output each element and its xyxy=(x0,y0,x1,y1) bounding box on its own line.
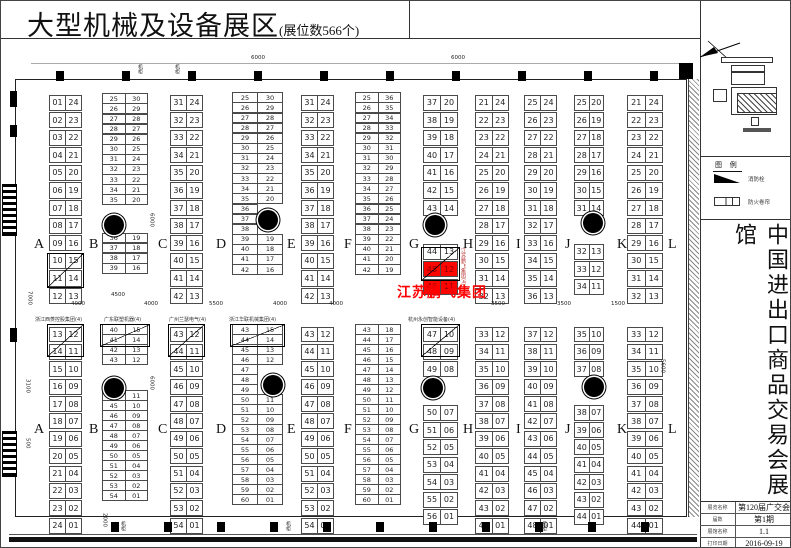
booth-cell[interactable]: 24 xyxy=(475,147,493,163)
booth[interactable]: 2524 xyxy=(524,95,557,111)
booth-cell[interactable]: 33 xyxy=(170,130,187,146)
booth[interactable]: 4302 xyxy=(627,500,663,516)
booth-cell[interactable]: 35 xyxy=(170,165,187,181)
booth-cell[interactable]: 39 xyxy=(627,431,646,447)
booth[interactable]: 3312 xyxy=(627,327,663,343)
booth[interactable]: 3124 xyxy=(170,95,203,111)
booth-cell[interactable]: 24 xyxy=(645,95,664,111)
booth-cell[interactable]: 04 xyxy=(440,457,458,473)
booth-cell[interactable]: 24 xyxy=(540,95,557,111)
booth[interactable]: 3213 xyxy=(627,288,663,304)
booth[interactable]: 4219 xyxy=(355,264,401,275)
booth-cell[interactable]: 50 xyxy=(301,448,318,464)
booth[interactable]: 2916 xyxy=(627,235,663,251)
booth-cell[interactable]: 37 xyxy=(627,396,646,412)
booth[interactable]: 1609 xyxy=(49,379,82,395)
booth-cell[interactable]: 38 xyxy=(301,218,318,234)
booth-cell[interactable]: 42 xyxy=(574,474,590,490)
booth-cell[interactable]: 36 xyxy=(627,379,646,395)
booth-cell[interactable]: 19 xyxy=(49,431,66,447)
booth[interactable]: 3906 xyxy=(627,431,663,447)
booth[interactable]: 2817 xyxy=(574,147,604,163)
booth-cell[interactable]: 01 xyxy=(257,494,283,505)
booth-cell[interactable]: 02 xyxy=(65,500,82,516)
booth-cell[interactable]: 22 xyxy=(645,130,664,146)
booth[interactable]: 3514 xyxy=(524,270,557,286)
booth-cell[interactable]: 50 xyxy=(170,448,187,464)
booth-cell[interactable]: 40 xyxy=(524,379,541,395)
booth-cell[interactable]: 18 xyxy=(65,200,82,216)
booth-cell[interactable]: 09 xyxy=(589,344,605,360)
booth-cell[interactable]: 36 xyxy=(524,288,541,304)
booth[interactable]: 4609 xyxy=(170,379,203,395)
booth-cell[interactable]: 49 xyxy=(301,431,318,447)
booth-cell[interactable]: 22 xyxy=(317,130,334,146)
booth-cell[interactable]: 05 xyxy=(186,448,203,464)
booth-cell[interactable]: 11 xyxy=(540,344,557,360)
booth-cell[interactable]: 06 xyxy=(49,182,66,198)
booth-cell[interactable]: 38 xyxy=(170,218,187,234)
booth[interactable]: 3411 xyxy=(627,344,663,360)
booth-cell[interactable]: 07 xyxy=(540,413,557,429)
booth[interactable]: 3316 xyxy=(524,235,557,251)
booth-cell[interactable]: 16 xyxy=(645,235,664,251)
booth-cell[interactable]: 38 xyxy=(524,344,541,360)
booth-cell[interactable]: 05 xyxy=(49,165,66,181)
booth-cell[interactable]: 53 xyxy=(423,457,441,473)
booth-cell[interactable]: 24 xyxy=(49,518,66,534)
booth-cell[interactable]: 31 xyxy=(301,95,318,111)
booth-cell[interactable]: 03 xyxy=(589,474,605,490)
booth-cell[interactable]: 24 xyxy=(492,95,510,111)
booth-cell[interactable]: 16 xyxy=(589,165,605,181)
booth-cell[interactable]: 43 xyxy=(524,431,541,447)
booth-cell[interactable]: 23 xyxy=(627,130,646,146)
booth-cell[interactable]: 17 xyxy=(49,396,66,412)
booth-cell[interactable]: 15 xyxy=(492,253,510,269)
booth-cell[interactable]: 36 xyxy=(475,379,493,395)
booth-cell[interactable]: 27 xyxy=(627,200,646,216)
booth[interactable]: 2124 xyxy=(627,95,663,111)
booth[interactable]: 4411 xyxy=(301,344,334,360)
booth-cell[interactable]: 06 xyxy=(540,431,557,447)
booth-cell[interactable]: 14 xyxy=(440,200,458,216)
booth-cell[interactable]: 16 xyxy=(540,235,557,251)
booth-cell[interactable]: 18 xyxy=(589,130,605,146)
booth-cell[interactable]: 22 xyxy=(65,130,82,146)
booth[interactable]: 0322 xyxy=(49,130,82,146)
booth-cell[interactable]: 12 xyxy=(589,261,605,277)
booth[interactable]: 3918 xyxy=(423,130,458,146)
booth[interactable]: 4009 xyxy=(524,379,557,395)
booth-cell[interactable]: 40 xyxy=(627,448,646,464)
booth-cell[interactable]: 18 xyxy=(317,200,334,216)
booth[interactable]: 0916 xyxy=(49,235,82,251)
booth-cell[interactable]: 23 xyxy=(65,112,82,128)
booth-cell[interactable]: 39 xyxy=(574,422,590,438)
booth[interactable]: 2619 xyxy=(574,112,604,128)
booth-cell[interactable]: 03 xyxy=(492,483,510,499)
booth[interactable]: 4906 xyxy=(170,431,203,447)
booth-cell[interactable]: 26 xyxy=(524,112,541,128)
booth-cell[interactable]: 43 xyxy=(574,492,590,508)
booth[interactable]: 2619 xyxy=(475,182,509,198)
booth-cell[interactable]: 49 xyxy=(423,361,441,377)
booth-cell[interactable]: 03 xyxy=(317,483,334,499)
booth[interactable]: 2916 xyxy=(475,235,509,251)
booth-cell[interactable]: 06 xyxy=(186,431,203,447)
booth[interactable]: 2223 xyxy=(475,112,509,128)
booth-cell[interactable]: 15 xyxy=(49,361,66,377)
booth-cell[interactable]: 37 xyxy=(574,361,590,377)
booth-cell[interactable]: 23 xyxy=(645,112,664,128)
booth-cell[interactable]: 37 xyxy=(524,327,541,343)
booth[interactable]: 0124 xyxy=(49,95,82,111)
booth-cell[interactable]: 21 xyxy=(475,95,493,111)
booth[interactable]: 4807 xyxy=(301,413,334,429)
booth[interactable]: 3322 xyxy=(170,130,203,146)
booth[interactable]: 3015 xyxy=(627,253,663,269)
booth[interactable]: 4302 xyxy=(475,500,509,516)
booth-cell[interactable]: 26 xyxy=(475,182,493,198)
booth-cell[interactable]: 52 xyxy=(423,439,441,455)
booth-cell[interactable]: 44 xyxy=(524,448,541,464)
booth-cell[interactable]: 27 xyxy=(524,130,541,146)
booth-cell[interactable]: 40 xyxy=(475,448,493,464)
booth[interactable]: 3708 xyxy=(627,396,663,412)
booth[interactable]: 0520 xyxy=(49,165,82,181)
booth-cell[interactable]: 53 xyxy=(301,500,318,516)
booth-cell[interactable]: 29 xyxy=(627,235,646,251)
booth[interactable]: 2302 xyxy=(49,500,82,516)
booth-cell[interactable]: 46 xyxy=(524,483,541,499)
booth-cell[interactable]: 07 xyxy=(65,413,82,429)
booth-cell[interactable]: 15 xyxy=(589,182,605,198)
booth-cell[interactable]: 37 xyxy=(423,95,441,111)
booth[interactable]: 3718 xyxy=(170,200,203,216)
booth[interactable]: 3510 xyxy=(574,327,604,343)
booth-cell[interactable]: 40 xyxy=(423,147,441,163)
booth[interactable]: 5302 xyxy=(170,500,203,516)
booth-cell[interactable]: 08 xyxy=(49,218,66,234)
booth-cell[interactable]: 39 xyxy=(170,235,187,251)
booth[interactable]: 4017 xyxy=(423,147,458,163)
booth-cell[interactable]: 36 xyxy=(574,344,590,360)
booth[interactable]: 3019 xyxy=(524,182,557,198)
booth-cell[interactable]: 06 xyxy=(440,422,458,438)
booth-cell[interactable]: 05 xyxy=(645,448,664,464)
booth-cell[interactable]: 06 xyxy=(492,431,510,447)
booth-cell[interactable]: 18 xyxy=(186,200,203,216)
booth-cell[interactable]: 31 xyxy=(524,200,541,216)
booth-cell[interactable]: 53 xyxy=(170,500,187,516)
booth[interactable]: 4405 xyxy=(524,448,557,464)
booth-cell[interactable]: 39 xyxy=(475,431,493,447)
booth-cell[interactable]: 23 xyxy=(540,112,557,128)
booth-cell[interactable]: 02 xyxy=(645,500,664,516)
booth-cell[interactable]: 19 xyxy=(589,112,605,128)
booth-cell[interactable]: 45 xyxy=(301,361,318,377)
booth[interactable]: 4203 xyxy=(627,483,663,499)
booth-cell[interactable]: 40 xyxy=(301,253,318,269)
booth-cell[interactable]: 01 xyxy=(125,490,149,501)
booth-cell[interactable]: 07 xyxy=(317,413,334,429)
booth-cell[interactable]: 20 xyxy=(540,165,557,181)
booth-cell[interactable]: 04 xyxy=(540,466,557,482)
booth[interactable]: 6001 xyxy=(355,494,401,505)
booth-cell[interactable]: 34 xyxy=(627,344,646,360)
booth-cell[interactable]: 16 xyxy=(125,263,149,274)
booth-cell[interactable]: 34 xyxy=(301,147,318,163)
booth-cell[interactable]: 35 xyxy=(301,165,318,181)
booth-cell[interactable]: 18 xyxy=(492,200,510,216)
booth[interactable]: 3811 xyxy=(524,344,557,360)
booth-cell[interactable]: 15 xyxy=(540,253,557,269)
booth-cell[interactable]: 18 xyxy=(645,200,664,216)
booth[interactable]: 2124 xyxy=(475,95,509,111)
booth-cell[interactable]: 47 xyxy=(301,396,318,412)
booth[interactable]: 1708 xyxy=(49,396,82,412)
booth-cell[interactable]: 10 xyxy=(589,327,605,343)
booth-cell[interactable]: 54 xyxy=(102,490,126,501)
booth[interactable]: 3411 xyxy=(574,279,604,295)
booth[interactable]: 4401 xyxy=(475,518,509,534)
booth-cell[interactable]: 32 xyxy=(524,218,541,234)
booth-cell[interactable]: 33 xyxy=(574,261,590,277)
booth-cell[interactable]: 22 xyxy=(492,130,510,146)
booth-cell[interactable]: 42 xyxy=(475,483,493,499)
booth-cell[interactable]: 28 xyxy=(627,218,646,234)
booth[interactable]: 0619 xyxy=(49,182,82,198)
booth-cell[interactable]: 24 xyxy=(65,95,82,111)
booth-cell[interactable]: 17 xyxy=(186,218,203,234)
booth[interactable]: 4603 xyxy=(524,483,557,499)
booth[interactable]: 4708 xyxy=(170,396,203,412)
booth-cell[interactable]: 07 xyxy=(49,200,66,216)
booth-cell[interactable]: 46 xyxy=(170,379,187,395)
booth[interactable]: 6001 xyxy=(232,494,283,505)
booth-cell[interactable]: 07 xyxy=(492,413,510,429)
booth-cell[interactable]: 23 xyxy=(317,112,334,128)
booth-cell[interactable]: 34 xyxy=(170,147,187,163)
booth-cell[interactable]: 17 xyxy=(65,218,82,234)
booth-cell[interactable]: 03 xyxy=(440,474,458,490)
booth[interactable]: 3712 xyxy=(524,327,557,343)
booth-cell[interactable]: 05 xyxy=(540,448,557,464)
booth[interactable]: 4203 xyxy=(475,483,509,499)
booth-cell[interactable]: 08 xyxy=(317,396,334,412)
booth-cell[interactable]: 35 xyxy=(627,361,646,377)
booth-cell[interactable]: 17 xyxy=(440,147,458,163)
booth[interactable]: 3613 xyxy=(524,288,557,304)
booth-cell[interactable]: 28 xyxy=(524,147,541,163)
booth[interactable]: 3114 xyxy=(627,270,663,286)
booth-cell[interactable]: 60 xyxy=(355,494,379,505)
booth[interactable]: 5005 xyxy=(301,448,334,464)
booth-cell[interactable]: 24 xyxy=(627,147,646,163)
booth-cell[interactable]: 34 xyxy=(524,253,541,269)
booth-cell[interactable]: 37 xyxy=(475,396,493,412)
booth[interactable]: 3916 xyxy=(170,235,203,251)
booth-cell[interactable]: 19 xyxy=(378,264,402,275)
booth-cell[interactable]: 41 xyxy=(301,270,318,286)
booth-cell[interactable]: 41 xyxy=(627,466,646,482)
booth[interactable]: 5401 xyxy=(170,518,203,534)
booth-cell[interactable]: 05 xyxy=(589,439,605,455)
booth[interactable]: 3520 xyxy=(170,165,203,181)
booth-cell[interactable]: 19 xyxy=(492,182,510,198)
booth[interactable]: 4908 xyxy=(423,361,458,377)
booth-cell[interactable]: 20 xyxy=(492,165,510,181)
booth-cell[interactable]: 20 xyxy=(589,95,605,111)
booth-cell[interactable]: 47 xyxy=(524,500,541,516)
booth-cell[interactable]: 42 xyxy=(627,483,646,499)
booth-cell[interactable]: 43 xyxy=(627,500,646,516)
booth-cell[interactable]: 28 xyxy=(475,218,493,234)
booth[interactable]: 4216 xyxy=(232,264,283,275)
booth[interactable]: 3906 xyxy=(574,422,604,438)
booth-cell[interactable]: 04 xyxy=(65,466,82,482)
booth-cell[interactable]: 15 xyxy=(645,253,664,269)
booth[interactable]: 4213 xyxy=(170,288,203,304)
booth-cell[interactable]: 47 xyxy=(170,396,187,412)
booth[interactable]: 4504 xyxy=(524,466,557,482)
booth-cell[interactable]: 48 xyxy=(301,413,318,429)
booth-cell[interactable]: 18 xyxy=(440,130,458,146)
booth-cell[interactable]: 17 xyxy=(540,218,557,234)
booth-cell[interactable]: 21 xyxy=(492,147,510,163)
booth[interactable]: 2916 xyxy=(574,165,604,181)
booth-cell[interactable]: 06 xyxy=(645,431,664,447)
booth[interactable]: 2817 xyxy=(475,218,509,234)
booth-cell[interactable]: 41 xyxy=(170,270,187,286)
booth-cell[interactable]: 44 xyxy=(301,344,318,360)
booth-cell[interactable]: 20 xyxy=(125,194,149,205)
booth-cell[interactable]: 11 xyxy=(645,344,664,360)
booth-cell[interactable]: 26 xyxy=(574,112,590,128)
booth-cell[interactable]: 02 xyxy=(49,112,66,128)
booth-cell[interactable]: 30 xyxy=(574,182,590,198)
booth[interactable]: 3411 xyxy=(475,344,509,360)
booth-cell[interactable]: 18 xyxy=(540,200,557,216)
booth-cell[interactable]: 16 xyxy=(440,165,458,181)
booth-cell[interactable]: 45 xyxy=(170,361,187,377)
booth[interactable]: 2520 xyxy=(475,165,509,181)
booth[interactable]: 3817 xyxy=(301,218,334,234)
booth-cell[interactable]: 17 xyxy=(645,218,664,234)
booth-cell[interactable]: 08 xyxy=(186,396,203,412)
booth[interactable]: 3312 xyxy=(475,327,509,343)
booth-cell[interactable]: 19 xyxy=(186,182,203,198)
booth-cell[interactable]: 04 xyxy=(589,457,605,473)
booth-cell[interactable]: 03 xyxy=(540,483,557,499)
booth-cell[interactable]: 22 xyxy=(475,112,493,128)
booth-cell[interactable]: 48 xyxy=(170,413,187,429)
booth[interactable]: 3708 xyxy=(574,361,604,377)
booth[interactable]: 2421 xyxy=(475,147,509,163)
booth[interactable]: 2401 xyxy=(49,518,82,534)
booth-cell[interactable]: 54 xyxy=(301,518,318,534)
booth[interactable]: 4015 xyxy=(170,253,203,269)
booth-cell[interactable]: 04 xyxy=(645,466,664,482)
booth[interactable]: 3520 xyxy=(301,165,334,181)
booth-cell[interactable]: 13 xyxy=(645,288,664,304)
booth[interactable]: 3415 xyxy=(524,253,557,269)
booth-cell[interactable]: 30 xyxy=(475,253,493,269)
booth-cell[interactable]: 25 xyxy=(627,165,646,181)
booth-cell[interactable]: 33 xyxy=(524,235,541,251)
booth-cell[interactable]: 04 xyxy=(492,466,510,482)
booth[interactable]: 5304 xyxy=(423,457,458,473)
booth-cell[interactable]: 09 xyxy=(49,235,66,251)
booth-cell[interactable]: 02 xyxy=(589,492,605,508)
booth[interactable]: 3510 xyxy=(475,361,509,377)
booth-cell[interactable]: 03 xyxy=(186,483,203,499)
booth-cell[interactable]: 21 xyxy=(645,147,664,163)
booth-cell[interactable]: 37 xyxy=(301,200,318,216)
booth-cell[interactable]: 10 xyxy=(65,361,82,377)
booth[interactable]: 5302 xyxy=(301,500,334,516)
booth[interactable]: 3819 xyxy=(423,112,458,128)
booth-cell[interactable]: 11 xyxy=(317,344,334,360)
booth[interactable]: 4104 xyxy=(475,466,509,482)
booth[interactable]: 4116 xyxy=(423,165,458,181)
booth[interactable]: 3213 xyxy=(574,244,604,260)
booth-cell[interactable]: 42 xyxy=(355,264,379,275)
booth[interactable]: 4807 xyxy=(170,413,203,429)
booth-cell[interactable]: 08 xyxy=(589,361,605,377)
booth-cell[interactable]: 12 xyxy=(645,327,664,343)
booth-cell[interactable]: 10 xyxy=(186,361,203,377)
booth-cell[interactable]: 29 xyxy=(475,235,493,251)
booth-cell[interactable]: 03 xyxy=(49,130,66,146)
booth-cell[interactable]: 19 xyxy=(540,182,557,198)
booth-cell[interactable]: 14 xyxy=(317,270,334,286)
booth-cell[interactable]: 35 xyxy=(102,194,126,205)
booth[interactable]: 5401 xyxy=(102,490,148,501)
booth-cell[interactable]: 09 xyxy=(645,379,664,395)
booth-cell[interactable]: 02 xyxy=(440,492,458,508)
booth[interactable]: 3807 xyxy=(574,405,604,421)
booth[interactable]: 5104 xyxy=(301,466,334,482)
booth-cell[interactable]: 16 xyxy=(186,235,203,251)
booth-cell[interactable]: 05 xyxy=(65,448,82,464)
booth-cell[interactable]: 29 xyxy=(524,165,541,181)
booth-cell[interactable]: 41 xyxy=(423,165,441,181)
booth-cell[interactable]: 24 xyxy=(186,95,203,111)
booth-cell[interactable]: 03 xyxy=(645,483,664,499)
booth-cell[interactable]: 01 xyxy=(186,518,203,534)
booth-cell[interactable]: 09 xyxy=(540,379,557,395)
booth-cell[interactable]: 04 xyxy=(49,147,66,163)
booth-cell[interactable]: 32 xyxy=(170,112,187,128)
booth-cell[interactable]: 12 xyxy=(49,288,66,304)
booth[interactable]: 3223 xyxy=(301,112,334,128)
booth-cell[interactable]: 02 xyxy=(186,500,203,516)
booth-cell[interactable]: 24 xyxy=(317,95,334,111)
booth[interactable]: 1906 xyxy=(49,431,82,447)
booth[interactable]: 2718 xyxy=(627,200,663,216)
booth[interactable]: 2722 xyxy=(524,130,557,146)
booth[interactable]: 3906 xyxy=(475,431,509,447)
booth-cell[interactable]: 42 xyxy=(423,182,441,198)
booth-cell[interactable]: 22 xyxy=(540,130,557,146)
booth[interactable]: 5502 xyxy=(423,492,458,508)
booth-cell[interactable]: 36 xyxy=(170,182,187,198)
booth-cell[interactable]: 32 xyxy=(627,288,646,304)
booth-cell[interactable]: 33 xyxy=(475,327,493,343)
booth-cell[interactable]: 10 xyxy=(492,361,510,377)
